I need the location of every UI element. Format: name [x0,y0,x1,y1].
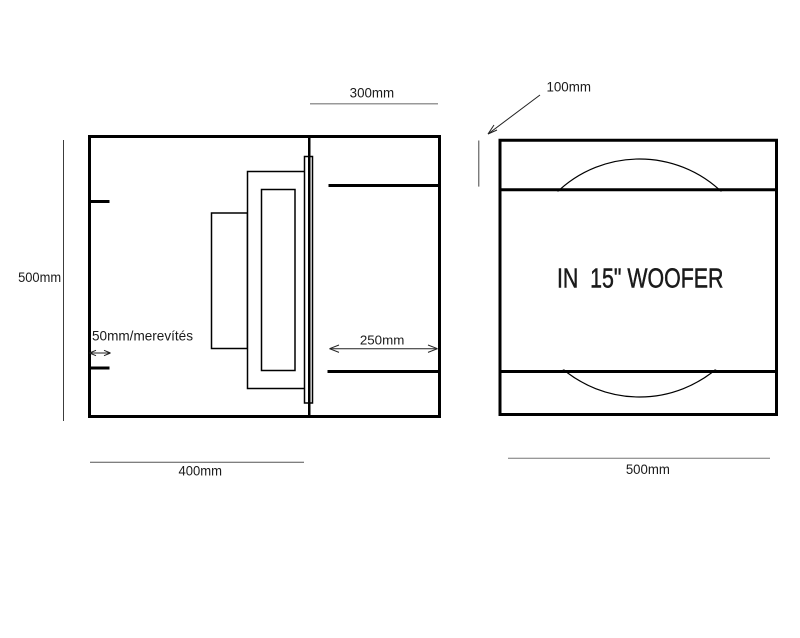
svg-text:500mm: 500mm [626,462,670,477]
svg-text:50mm/merevítés: 50mm/merevítés [92,327,193,343]
svg-text:300mm: 300mm [350,86,395,101]
svg-text:IN 15" WOOFER: IN 15" WOOFER [557,263,724,294]
svg-text:400mm: 400mm [179,464,223,479]
svg-text:100mm: 100mm [546,78,591,94]
svg-text:500mm: 500mm [18,269,61,285]
svg-text:250mm: 250mm [360,333,405,348]
